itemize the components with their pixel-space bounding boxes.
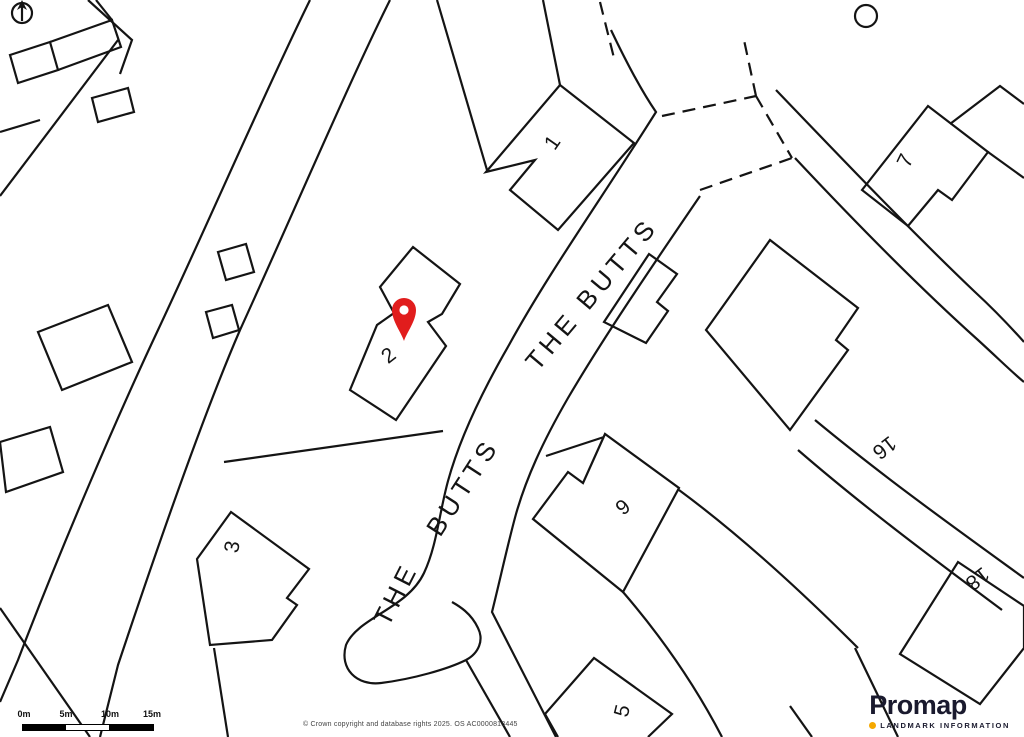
road-edges (0, 0, 1024, 737)
building-outline (38, 305, 132, 390)
map-viewport: THE BUTTS THE BUTTS 1 2 3 5 6 7 16 18 0m… (0, 0, 1024, 737)
plot-boundary (0, 40, 118, 196)
scale-bar-segment (109, 725, 153, 730)
building-outline (92, 88, 134, 122)
dashed-boundary (700, 158, 792, 190)
building-outline-3 (197, 512, 309, 645)
scale-bar-labels: 0m 5m 10m 15m (22, 709, 154, 722)
scale-bar-segment (66, 725, 109, 730)
plot-boundary (988, 152, 1024, 178)
circular-feature (855, 5, 877, 27)
plot-boundary (224, 431, 443, 462)
promap-logo: Promap LANDMARK INFORMATION (869, 692, 1010, 730)
building-outline (0, 427, 63, 492)
road-edge (815, 420, 1024, 578)
scale-label-15m: 15m (143, 709, 161, 719)
scale-label-5m: 5m (59, 709, 72, 719)
plot-boundary (790, 706, 812, 737)
building-outline-6 (533, 434, 679, 592)
building-outline (706, 240, 858, 430)
scale-bar-bar (22, 724, 154, 731)
north-arrow-icon (12, 0, 32, 23)
promap-wordmark: Promap (869, 692, 1010, 719)
building-outline (50, 20, 121, 70)
boundary-dashes (600, 2, 792, 190)
scale-label-10m: 10m (101, 709, 119, 719)
building-outline (206, 305, 239, 338)
logo-dot-icon (869, 722, 876, 729)
dashed-boundary (756, 96, 792, 158)
location-pin-body (392, 298, 416, 341)
copyright-attribution: © Crown copyright and database rights 20… (303, 721, 518, 728)
scale-label-0m: 0m (17, 709, 30, 719)
promap-tagline-row: LANDMARK INFORMATION (869, 722, 1010, 730)
building-outline (218, 244, 254, 280)
building-outline (950, 86, 1024, 124)
plot-boundary (0, 120, 40, 132)
plot-boundary (679, 490, 858, 648)
dashed-boundary (662, 96, 756, 116)
building-outline (10, 42, 58, 83)
building-outline-18 (900, 562, 1024, 704)
scale-bar: 0m 5m 10m 15m (22, 709, 154, 735)
road-edge (100, 0, 390, 737)
road-edge (776, 90, 1024, 342)
scale-bar-segment (23, 725, 66, 730)
plot-boundary (623, 592, 722, 737)
building-outlines (0, 0, 1024, 737)
promap-tagline: LANDMARK INFORMATION (880, 722, 1010, 730)
plot-boundary (543, 0, 560, 85)
road-edge (795, 158, 1024, 382)
building-outline-5 (545, 658, 672, 737)
map-linework (0, 0, 1024, 737)
location-pin-icon (392, 298, 416, 341)
building-outline-7 (862, 106, 988, 226)
building-outline-1 (486, 85, 634, 230)
location-pin-hole (399, 305, 408, 314)
plot-boundary (437, 0, 487, 170)
plot-boundary (214, 648, 228, 737)
building-outline (88, 0, 132, 74)
dashed-boundary (744, 40, 756, 96)
